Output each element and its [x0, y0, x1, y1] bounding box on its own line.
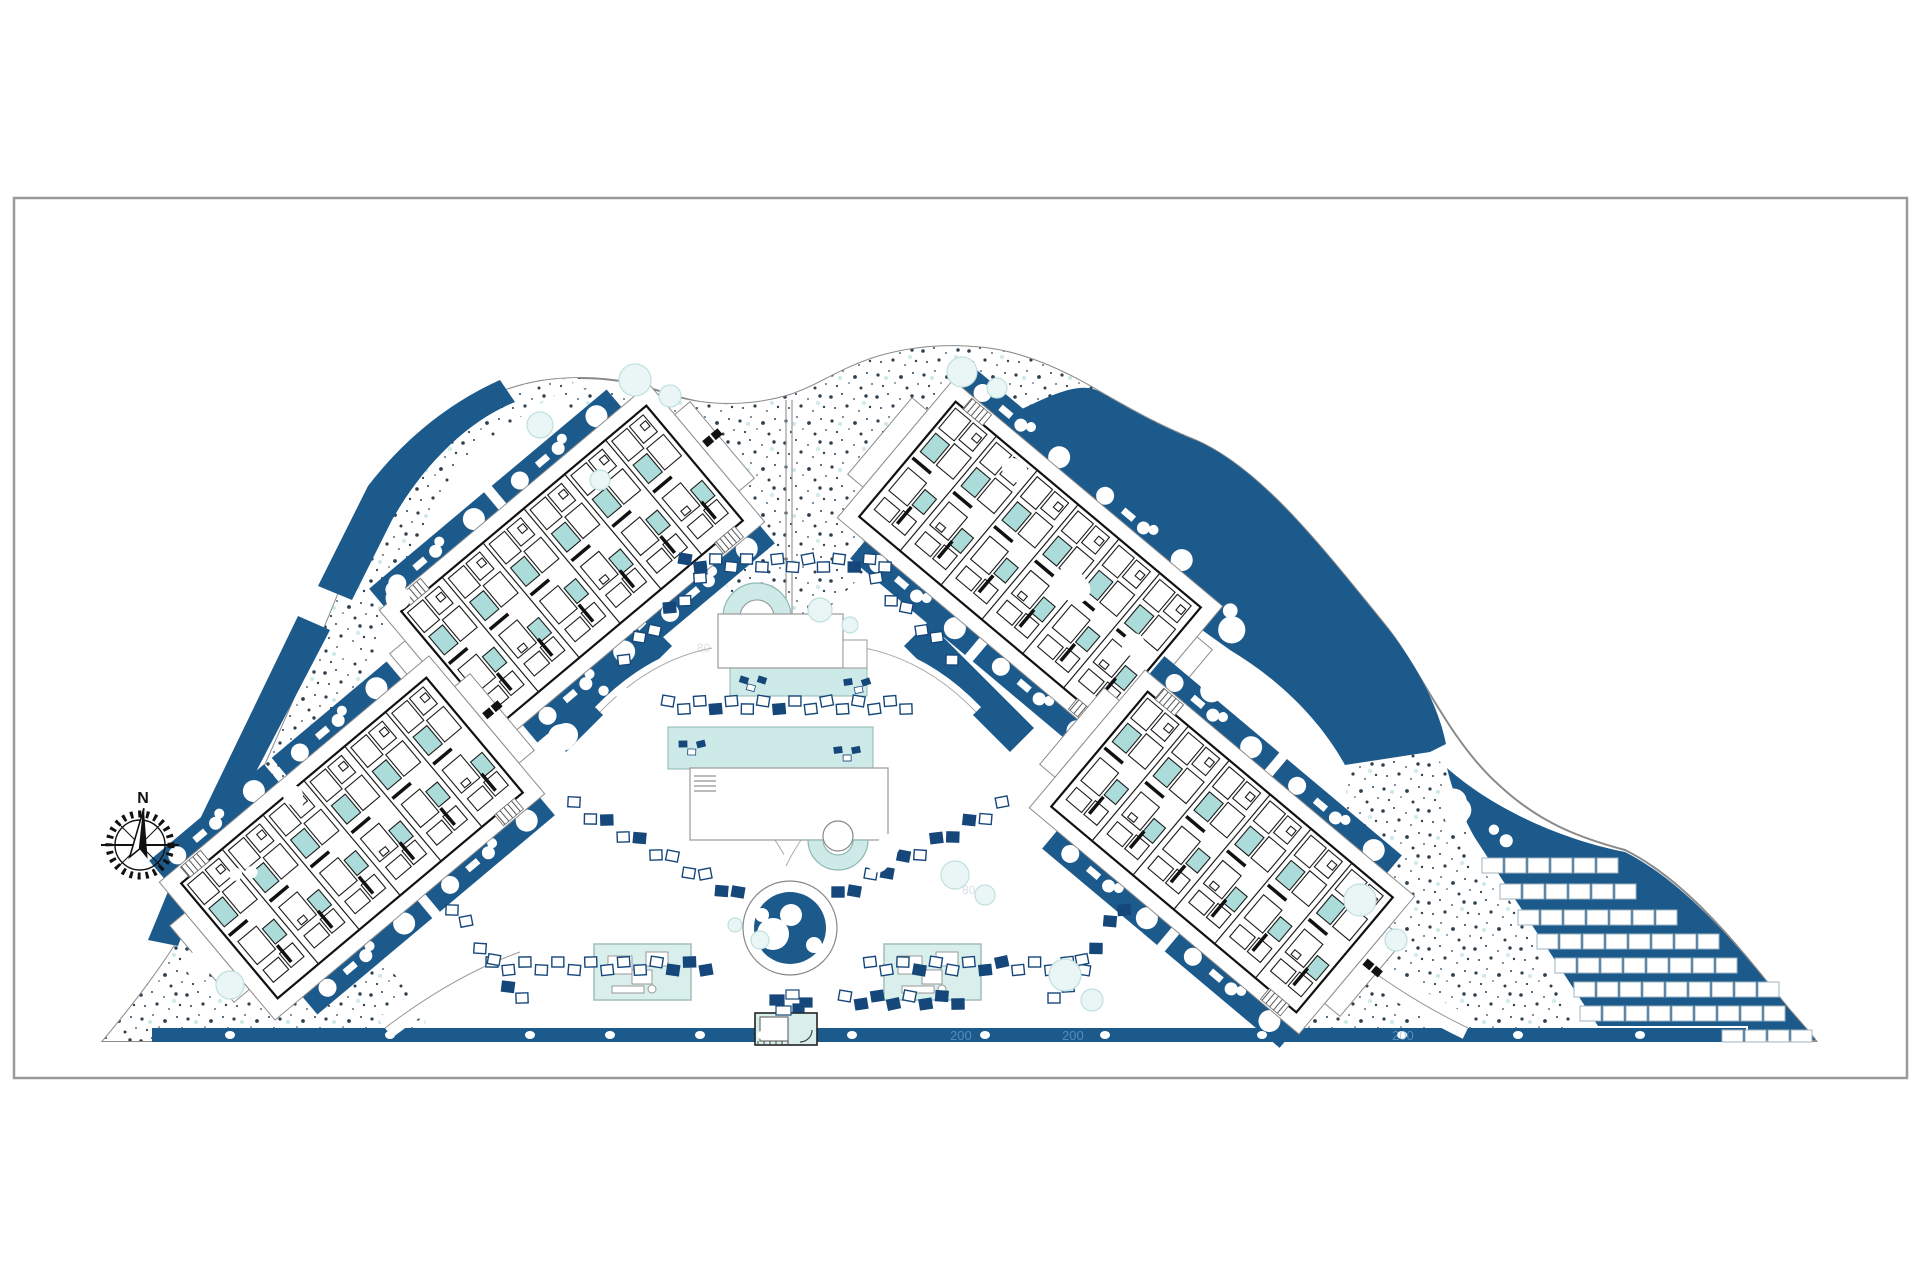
sun-lounger — [756, 695, 769, 707]
sun-lounger — [930, 631, 943, 643]
parking-stall — [1574, 858, 1595, 873]
parking-stall — [1569, 884, 1590, 899]
shrub — [1440, 788, 1467, 815]
sun-lounger — [915, 625, 928, 637]
pool-lounger-icon — [834, 747, 843, 754]
shrub — [1223, 603, 1238, 618]
sun-lounger — [535, 965, 548, 976]
road-shrub — [847, 1031, 857, 1039]
parking-stall — [1615, 884, 1636, 899]
sun-lounger — [979, 813, 992, 824]
sun-lounger — [771, 553, 784, 564]
parking-stall — [1670, 958, 1691, 973]
sun-lounger — [1090, 943, 1102, 953]
tree — [751, 931, 769, 949]
sun-lounger — [804, 703, 817, 714]
road-shrub — [605, 1031, 615, 1039]
tree — [659, 385, 681, 407]
parking-stall — [1718, 1006, 1739, 1021]
parking-stall — [1652, 934, 1673, 949]
shrub — [185, 951, 213, 979]
sun-lounger — [678, 704, 691, 715]
sun-lounger — [852, 695, 866, 707]
sun-lounger — [1029, 957, 1041, 967]
shrub — [1128, 639, 1142, 653]
sun-lounger — [919, 998, 932, 1010]
sun-lounger — [903, 990, 917, 1002]
parking-stall — [1555, 958, 1576, 973]
parking-stall — [1597, 982, 1618, 997]
sun-lounger — [585, 957, 597, 967]
sun-lounger — [863, 553, 876, 564]
pool-lounger-icon — [844, 678, 853, 685]
parking-stall — [1610, 910, 1631, 925]
parking-row — [1574, 982, 1779, 997]
parking-stall — [1601, 958, 1622, 973]
tree — [987, 378, 1007, 398]
shrub — [245, 866, 257, 878]
sun-lounger — [817, 562, 829, 572]
sun-lounger — [884, 695, 897, 706]
sun-lounger — [848, 562, 860, 572]
road-marker-200: 200 — [1062, 1028, 1084, 1043]
sun-lounger — [946, 655, 958, 665]
entrance-equipment — [793, 1004, 804, 1012]
pavilion-bar — [612, 986, 644, 993]
sun-lounger — [661, 695, 675, 707]
sun-lounger — [838, 990, 852, 1002]
sun-lounger — [897, 957, 909, 967]
parking-stall — [1564, 910, 1585, 925]
sun-lounger — [1012, 964, 1025, 975]
sun-lounger — [568, 797, 581, 808]
parking-stall — [1745, 1030, 1766, 1042]
pool-lounger-icon — [688, 749, 696, 755]
shrub — [229, 868, 242, 881]
road-shrub — [695, 1031, 705, 1039]
shrub — [292, 797, 303, 808]
sun-lounger — [502, 964, 515, 975]
parking-stall — [1587, 910, 1608, 925]
parking-stall — [1541, 910, 1562, 925]
sun-lounger — [446, 905, 458, 915]
sun-lounger — [666, 964, 679, 976]
sun-lounger — [963, 814, 976, 825]
sun-lounger — [741, 704, 753, 714]
faint-cad-marker: 80 — [962, 883, 976, 897]
sun-lounger — [887, 998, 901, 1010]
jacuzzi — [823, 821, 853, 851]
parking-stall — [1624, 958, 1645, 973]
entrance-equipment — [770, 995, 784, 1005]
tree — [947, 357, 977, 387]
parking-stall — [1722, 1030, 1743, 1042]
sun-lounger — [900, 602, 914, 614]
shrub — [615, 686, 628, 699]
sun-lounger — [871, 990, 884, 1002]
shrub-cluster — [1122, 633, 1145, 656]
sun-lounger — [979, 964, 992, 975]
parking-stall — [1574, 982, 1595, 997]
sun-lounger — [832, 887, 844, 897]
sun-lounger — [930, 832, 943, 843]
shrub — [385, 581, 401, 597]
parking-stall — [1592, 884, 1613, 899]
sun-lounger — [885, 596, 897, 606]
road-shrub — [1513, 1031, 1523, 1039]
sun-lounger — [786, 561, 799, 572]
sun-lounger — [914, 850, 927, 861]
faint-cad-marker: 80 — [697, 641, 711, 655]
tree — [619, 364, 651, 396]
sun-lounger — [740, 554, 752, 564]
shrub — [1500, 834, 1513, 847]
sun-lounger — [617, 654, 630, 665]
shrub — [867, 850, 889, 872]
sun-lounger — [519, 957, 531, 967]
parking-stall — [1629, 934, 1650, 949]
parking-stall — [1500, 884, 1521, 899]
tree — [527, 412, 553, 438]
sun-lounger — [617, 957, 630, 968]
shrub — [1218, 616, 1245, 643]
sun-lounger — [679, 596, 691, 606]
parking-stall — [1523, 884, 1544, 899]
road-marker-200: 200 — [950, 1028, 972, 1043]
sun-lounger — [725, 561, 738, 572]
sun-lounger — [633, 832, 646, 843]
sun-lounger — [682, 867, 695, 879]
parking-stall — [1716, 958, 1737, 973]
sun-lounger — [854, 998, 867, 1010]
parking-stall — [1597, 858, 1618, 873]
parking-stall — [1647, 958, 1668, 973]
site-plan-drawing: 2002002008080 N — [0, 0, 1920, 1280]
parking-stall — [1791, 1030, 1812, 1042]
sun-lounger — [693, 696, 706, 707]
road-shrub — [1635, 1031, 1645, 1039]
shrub — [598, 686, 608, 696]
sun-lounger — [773, 703, 786, 714]
parking-stall — [1712, 982, 1733, 997]
shrub — [1290, 733, 1303, 746]
sun-lounger — [995, 796, 1009, 808]
parking-stall — [1698, 934, 1719, 949]
sun-lounger — [650, 850, 662, 860]
sun-lounger — [1104, 916, 1117, 927]
parking-stall — [1578, 958, 1599, 973]
parking-stall — [1620, 982, 1641, 997]
shrub — [695, 843, 709, 857]
sun-lounger — [995, 956, 1009, 968]
parking-stall — [1505, 858, 1526, 873]
sun-lounger — [946, 964, 960, 976]
parking-stall — [1560, 934, 1581, 949]
sun-lounger — [836, 704, 849, 715]
sun-lounger — [632, 631, 645, 643]
entrance-equipment — [776, 1006, 791, 1015]
parking-stall — [1741, 1006, 1762, 1021]
tree — [975, 885, 995, 905]
sun-lounger — [584, 814, 596, 824]
parking-stall — [1546, 884, 1567, 899]
entrance-building — [755, 1013, 817, 1046]
sun-lounger — [900, 704, 912, 714]
sun-lounger — [617, 832, 629, 842]
sun-lounger — [962, 956, 975, 967]
road-shrub — [225, 1031, 235, 1039]
tree — [1081, 989, 1103, 1011]
sun-lounger — [715, 885, 728, 896]
sun-lounger — [666, 850, 680, 862]
parking-stall — [1633, 910, 1654, 925]
sun-lounger — [832, 553, 845, 564]
sun-lounger — [725, 695, 738, 706]
sun-lounger — [710, 554, 722, 564]
parking-stall — [1551, 858, 1572, 873]
tree — [1049, 959, 1081, 991]
sun-lounger — [929, 956, 942, 968]
parking-stall — [1768, 1030, 1789, 1042]
sun-lounger — [699, 964, 713, 976]
shrub — [553, 897, 579, 923]
tree — [590, 470, 610, 490]
road-shrub — [980, 1031, 990, 1039]
parking-stall — [1689, 982, 1710, 997]
sun-lounger — [1048, 993, 1060, 1003]
tree — [808, 598, 832, 622]
pool-lounger-icon — [679, 741, 687, 747]
parking-stall — [1482, 858, 1503, 873]
sun-lounger — [1118, 904, 1131, 915]
sun-lounger — [634, 965, 647, 976]
parking-stall — [1518, 910, 1539, 925]
sun-lounger — [789, 696, 801, 706]
shrub-cluster — [1198, 666, 1224, 702]
parking-stall — [1606, 934, 1627, 949]
parking-stall — [1656, 910, 1677, 925]
parking-row — [1518, 910, 1677, 925]
tree — [728, 918, 742, 932]
sun-lounger — [868, 703, 881, 715]
sun-lounger — [694, 561, 707, 572]
tree — [1385, 929, 1407, 951]
shrub — [1006, 461, 1027, 482]
sun-lounger — [936, 991, 949, 1002]
main-pool-deck — [690, 768, 888, 840]
sun-lounger — [501, 981, 514, 992]
sun-lounger — [568, 964, 581, 975]
sun-lounger — [709, 703, 722, 714]
sun-lounger — [601, 815, 613, 825]
pavilion-east — [884, 944, 981, 1000]
sun-lounger — [552, 957, 564, 967]
sun-lounger — [516, 993, 528, 1003]
tree — [216, 971, 244, 999]
parking-stall — [1643, 982, 1664, 997]
sun-lounger — [474, 943, 487, 954]
road-shrub — [525, 1031, 535, 1039]
parking-stall — [1693, 958, 1714, 973]
parking-stall — [1580, 1006, 1601, 1021]
parking-stall — [1672, 1006, 1693, 1021]
parking-stall — [1758, 982, 1779, 997]
sun-lounger — [698, 868, 712, 880]
shrub — [683, 850, 697, 864]
sun-lounger — [879, 562, 891, 572]
parking-row — [1580, 1006, 1785, 1021]
shrub — [1489, 825, 1499, 835]
sun-lounger — [897, 850, 911, 862]
parking-stall — [1735, 982, 1756, 997]
parking-stall — [1695, 1006, 1716, 1021]
parking-stall — [1583, 934, 1604, 949]
road-marker-200: 200 — [1392, 1028, 1414, 1043]
sun-lounger — [820, 695, 834, 707]
sun-lounger — [487, 954, 501, 966]
pool-lounger-icon — [852, 746, 861, 753]
upper-pool-deck — [718, 614, 843, 668]
pool-lounger-icon — [854, 686, 863, 694]
sun-lounger — [678, 553, 692, 565]
parking-stall — [1528, 858, 1549, 873]
parking-stall — [1626, 1006, 1647, 1021]
parking-stall — [1764, 1006, 1785, 1021]
sun-lounger — [459, 915, 473, 927]
sun-lounger — [731, 886, 745, 898]
tree — [842, 617, 858, 633]
sun-lounger — [694, 573, 707, 584]
road-shrub — [385, 1031, 395, 1039]
parking-stall — [1649, 1006, 1670, 1021]
shrub — [554, 723, 578, 747]
sun-lounger — [913, 964, 927, 976]
shrub — [1200, 680, 1223, 703]
sun-lounger — [647, 624, 661, 636]
road-shrub — [757, 1031, 767, 1039]
sun-lounger — [663, 602, 676, 613]
sun-lounger — [848, 885, 862, 897]
parking-stall — [1537, 934, 1558, 949]
pavilion-table — [648, 985, 656, 993]
pool-lounger-icon — [843, 755, 851, 761]
parking-stall — [1675, 934, 1696, 949]
shrub — [343, 644, 357, 658]
sun-lounger — [947, 832, 959, 842]
parking-stall — [1603, 1006, 1624, 1021]
shrub — [1073, 573, 1084, 584]
sun-lounger — [601, 964, 614, 975]
sun-lounger — [952, 999, 964, 1009]
road-shrub — [1257, 1031, 1267, 1039]
sun-lounger — [801, 553, 815, 565]
parking-stall — [1666, 982, 1687, 997]
sun-lounger — [756, 562, 769, 573]
sun-lounger — [650, 956, 663, 968]
sun-lounger — [880, 964, 893, 976]
sun-lounger — [683, 957, 695, 967]
entrance-equipment — [786, 990, 799, 999]
road-shrub — [1100, 1031, 1110, 1039]
compass-north-label: N — [137, 790, 149, 807]
sun-lounger — [869, 572, 882, 584]
tree — [1344, 884, 1376, 916]
sun-lounger — [863, 956, 876, 967]
